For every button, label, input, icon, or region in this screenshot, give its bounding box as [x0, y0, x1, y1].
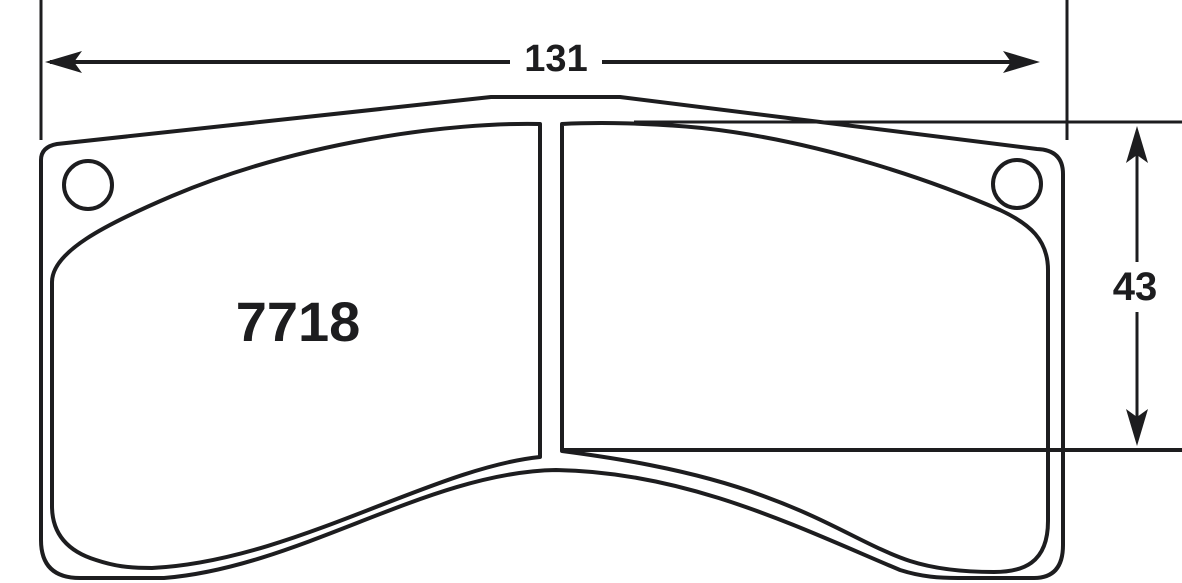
brake-pad-diagram-canvas: 131 43 7718 — [0, 0, 1182, 583]
width-dimension-label: 131 — [524, 38, 587, 80]
height-dimension-label: 43 — [1113, 265, 1158, 309]
backplate-outline — [41, 97, 1063, 578]
part-number-label: 7718 — [236, 290, 361, 353]
mounting-hole-right — [993, 160, 1041, 208]
mounting-hole-left — [64, 161, 112, 209]
brake-pad-technical-drawing: 131 43 7718 — [0, 0, 1182, 583]
friction-pad-right — [562, 123, 1048, 572]
